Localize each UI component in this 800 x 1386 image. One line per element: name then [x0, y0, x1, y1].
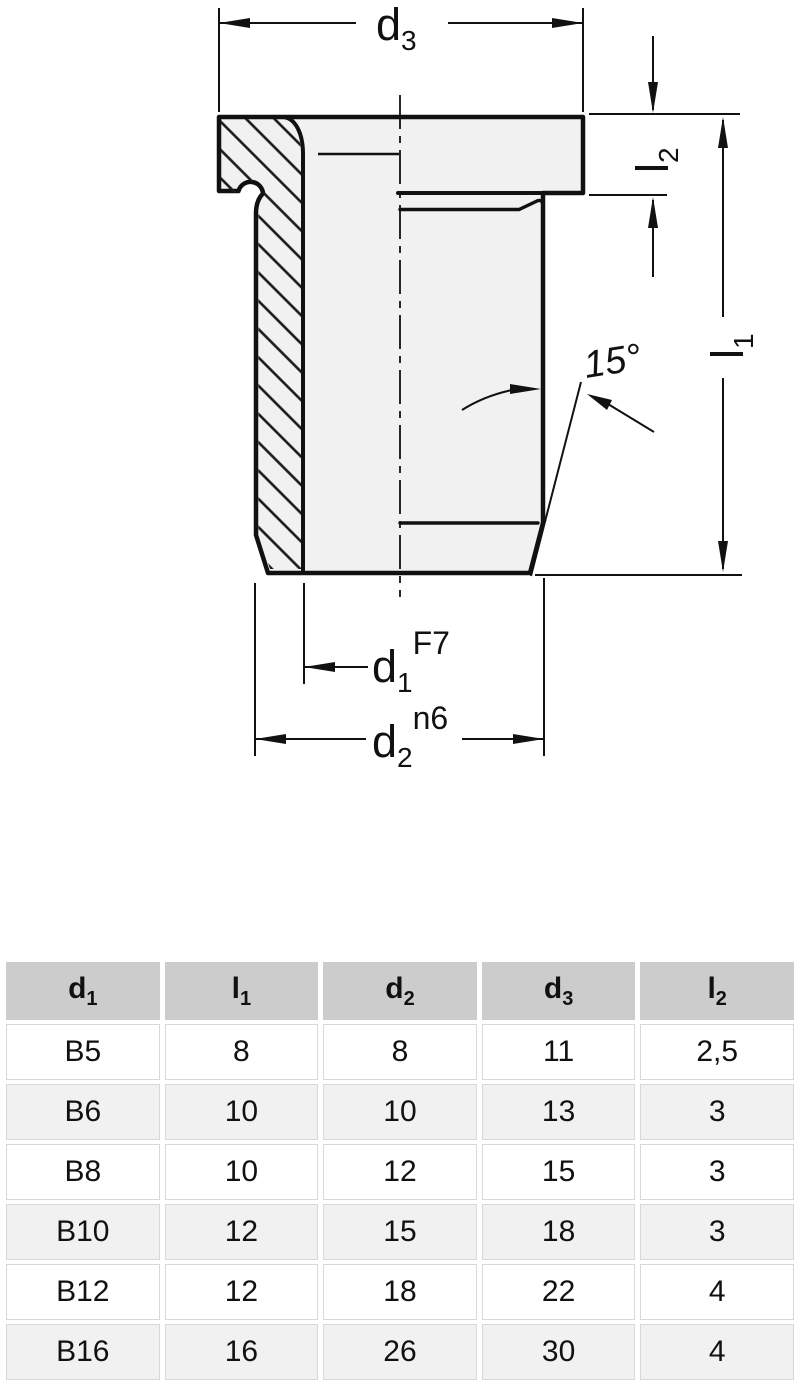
part-cross-section [219, 95, 583, 597]
table-cell: 18 [323, 1264, 477, 1320]
header-cell-d2: d2 [323, 962, 477, 1020]
angle-arc [608, 404, 654, 432]
arrowhead-up-icon [648, 197, 658, 228]
header-cell-l2: l2 [640, 962, 794, 1020]
arrowhead-down-icon [648, 82, 658, 113]
table-cell: 11 [482, 1024, 636, 1080]
page: d3 l2 l1 15° [0, 0, 800, 1386]
dimension-d1: d1F7 [304, 583, 450, 698]
arrowhead-left-icon [304, 662, 335, 672]
table-cell: B6 [6, 1084, 160, 1140]
table-cell: 22 [482, 1264, 636, 1320]
table-cell: B5 [6, 1024, 160, 1080]
table-cell: B16 [6, 1324, 160, 1380]
table-cell: 16 [165, 1324, 319, 1380]
label-d1: d1F7 [372, 625, 450, 698]
dimension-d3: d3 [219, 0, 583, 112]
table-cell: B10 [6, 1204, 160, 1260]
table-cell: 18 [482, 1204, 636, 1260]
arrowhead-arc-icon [587, 394, 612, 410]
table-cell: 10 [165, 1144, 319, 1200]
technical-drawing: d3 l2 l1 15° [0, 0, 800, 820]
table-cell: 15 [323, 1204, 477, 1260]
table-cell: 8 [323, 1024, 477, 1080]
header-cell-l1: l1 [165, 962, 319, 1020]
table-cell: 12 [165, 1204, 319, 1260]
label-d2: d2n6 [372, 700, 448, 773]
arrowhead-right-icon [552, 18, 583, 28]
label-l1: l1 [702, 333, 759, 359]
table-cell: 4 [640, 1324, 794, 1380]
dimension-l2: l2 [589, 36, 740, 277]
table-cell: 12 [323, 1144, 477, 1200]
table-cell: 26 [323, 1324, 477, 1380]
label-l2: l2 [627, 147, 684, 173]
table-cell: 13 [482, 1084, 636, 1140]
dimension-table: d1 l1 d2 d3 l2 B5 8 8 11 2,5 B6 10 10 13… [6, 962, 794, 1380]
table-cell: 10 [165, 1084, 319, 1140]
arrowhead-left-icon [219, 18, 250, 28]
table-cell: B8 [6, 1144, 160, 1200]
table-cell: 4 [640, 1264, 794, 1320]
table-cell: 3 [640, 1204, 794, 1260]
table-cell: B12 [6, 1264, 160, 1320]
table-cell: 8 [165, 1024, 319, 1080]
arrowhead-down-icon [718, 541, 728, 572]
arrowhead-up-icon [718, 117, 728, 148]
table-cell: 10 [323, 1084, 477, 1140]
table-cell: 12 [165, 1264, 319, 1320]
label-chamfer-angle: 15° [581, 336, 644, 386]
table-cell: 2,5 [640, 1024, 794, 1080]
table-cell: 3 [640, 1144, 794, 1200]
header-cell-d1: d1 [6, 962, 160, 1020]
table-cell: 15 [482, 1144, 636, 1200]
arrowhead-left-icon [255, 734, 286, 744]
header-cell-d3: d3 [482, 962, 636, 1020]
arrowhead-right-icon [513, 734, 544, 744]
table-cell: 30 [482, 1324, 636, 1380]
table-cell: 3 [640, 1084, 794, 1140]
label-d3: d3 [376, 0, 417, 56]
